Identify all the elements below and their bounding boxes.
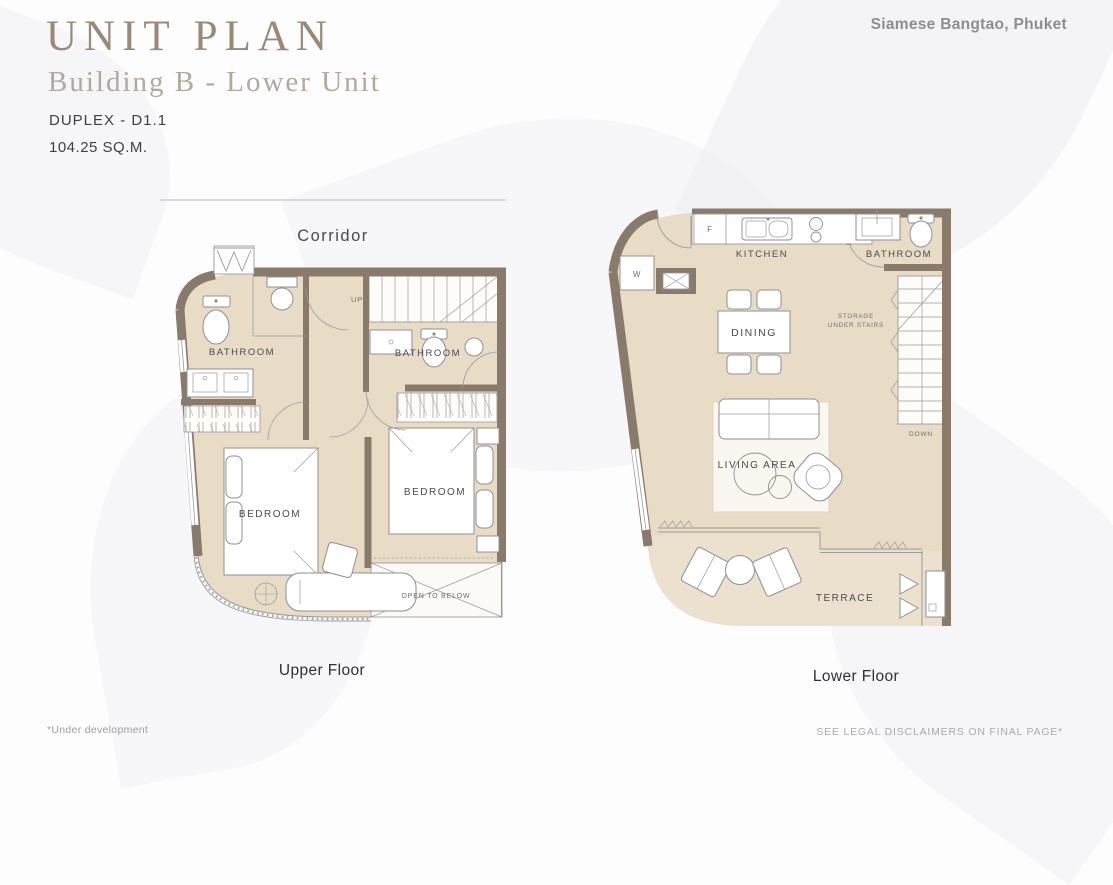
lower-floor-plan: W F KITCHEN BATHROOM DINING STORAGE [595, 185, 980, 665]
project-name: Siamese Bangtao, Phuket [871, 16, 1067, 34]
lower-floor-caption: Lower Floor [786, 668, 926, 686]
down-label: DOWN [909, 431, 933, 438]
up-label: UP [351, 295, 363, 304]
storage-label-line2: UNDER STAIRS [828, 322, 884, 329]
bathroom-left-label: BATHROOM [209, 347, 275, 358]
upper-floor-plan: Corridor UP [150, 185, 520, 665]
upper-floor-caption: Upper Floor [252, 662, 392, 680]
bedroom-left-label: BEDROOM [239, 509, 301, 520]
terrace-label: TERRACE [816, 593, 874, 604]
kitchen-counter [692, 214, 872, 244]
page-title: UNIT PLAN [46, 12, 334, 61]
unit-code: DUPLEX - D1.1 [49, 112, 167, 129]
stairs-down [891, 276, 946, 424]
unit-area: 104.25 SQ.M. [49, 139, 148, 156]
shaft [656, 268, 696, 294]
entry-door-icon [214, 246, 254, 274]
stairs-up [369, 275, 499, 322]
bathroom-right-label: BATHROOM [395, 348, 461, 359]
fridge-label: F [707, 225, 713, 234]
living-area-furniture [713, 399, 847, 512]
lower-bathroom-label: BATHROOM [866, 249, 932, 260]
kitchen-label: KITCHEN [736, 249, 788, 260]
storage-label-line1: STORAGE [838, 313, 874, 320]
open-to-below-label: OPEN TO BELOW [402, 593, 471, 600]
washer-label: W [633, 270, 641, 279]
legal-disclaimer-note: SEE LEGAL DISCLAIMERS ON FINAL PAGE* [816, 726, 1063, 738]
wardrobe [397, 393, 497, 422]
page-subtitle: Building B - Lower Unit [48, 66, 381, 99]
bedroom-right-label: BEDROOM [404, 487, 466, 498]
corridor-label: Corridor [297, 227, 369, 245]
dining-label: DINING [731, 327, 777, 339]
living-area-label: LIVING AREA [718, 460, 797, 471]
under-development-note: *Under development [47, 724, 148, 736]
